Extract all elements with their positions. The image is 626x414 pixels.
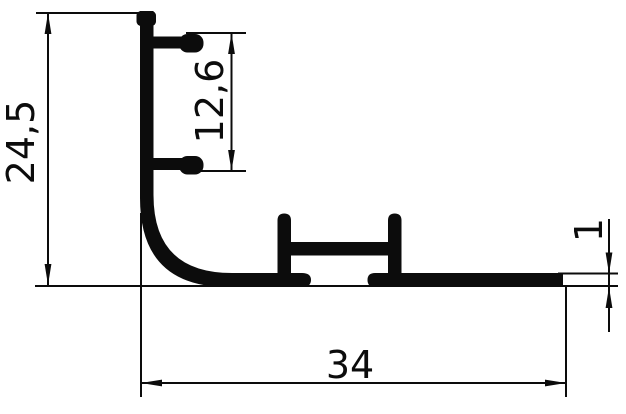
profile-middle-flange	[154, 158, 183, 170]
profile-base-flange-right	[368, 273, 564, 287]
arrow-thickness-up	[606, 287, 613, 308]
dimension-label-flange-spacing: 12,6	[190, 46, 230, 156]
profile-right-rib	[388, 214, 402, 281]
technical-drawing-canvas: 24,5 12,6 1 34	[0, 0, 626, 414]
profile-upper-flange	[154, 37, 183, 49]
arrow-width-left	[141, 380, 162, 387]
dimension-arrows	[45, 13, 613, 386]
dimension-label-base-thickness: 1	[569, 210, 609, 250]
arrow-height-up	[45, 13, 52, 34]
arrow-height-down	[45, 264, 52, 285]
dimension-label-overall-width: 34	[300, 345, 400, 385]
dimension-label-overall-height: 24,5	[1, 92, 41, 192]
dimension-lines	[35, 13, 618, 397]
profile-rib-crossbar	[278, 242, 402, 256]
arrow-width-right	[545, 380, 566, 387]
arrow-thickness-down	[606, 253, 613, 274]
